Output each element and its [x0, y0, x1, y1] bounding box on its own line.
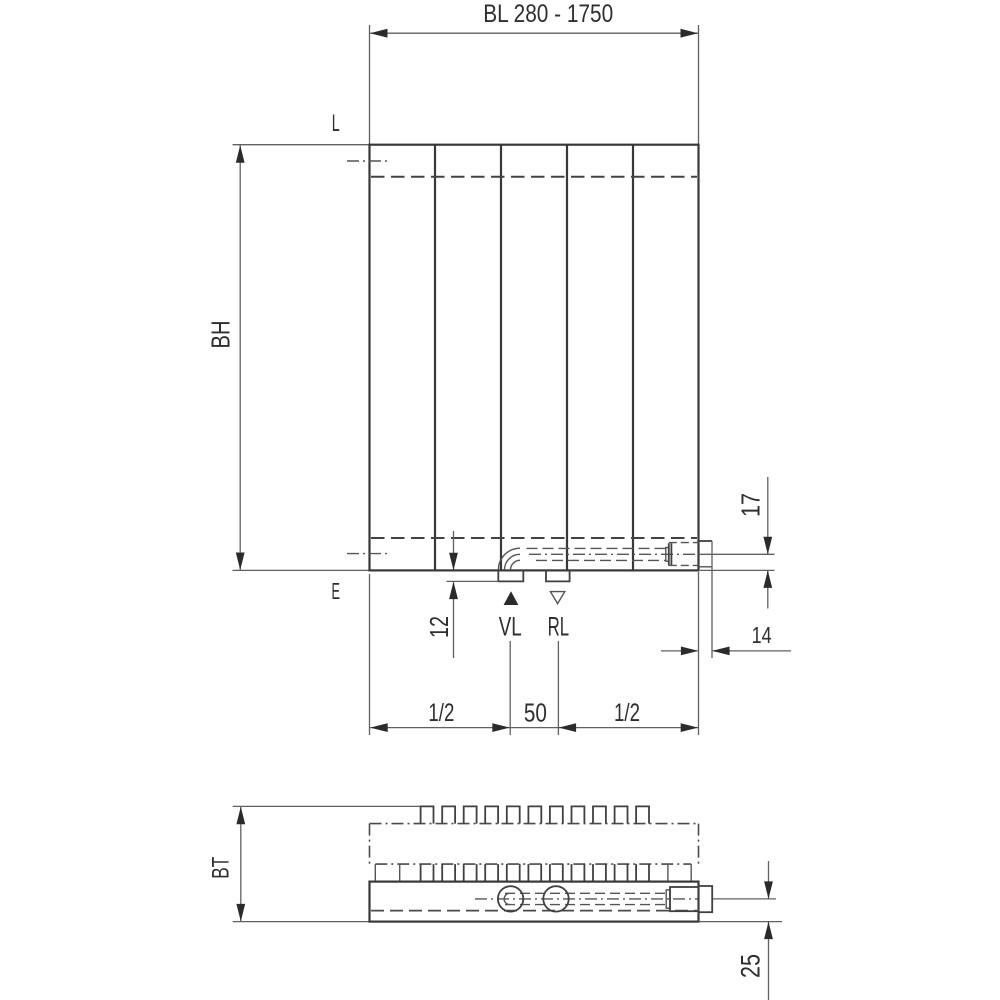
- svg-text:BL 280 - 1750: BL 280 - 1750: [483, 0, 613, 28]
- svg-text:E: E: [332, 578, 341, 604]
- svg-text:L: L: [332, 110, 340, 137]
- svg-text:1/2: 1/2: [614, 699, 640, 727]
- svg-text:BH: BH: [205, 321, 235, 349]
- svg-text:1/2: 1/2: [428, 699, 454, 727]
- svg-text:12: 12: [424, 616, 454, 638]
- svg-text:BT: BT: [208, 856, 235, 878]
- svg-text:17: 17: [735, 493, 765, 517]
- svg-text:RL: RL: [548, 612, 570, 642]
- svg-text:50: 50: [524, 697, 547, 727]
- svg-text:VL: VL: [499, 612, 522, 642]
- svg-text:25: 25: [736, 954, 766, 978]
- svg-text:14: 14: [752, 622, 772, 648]
